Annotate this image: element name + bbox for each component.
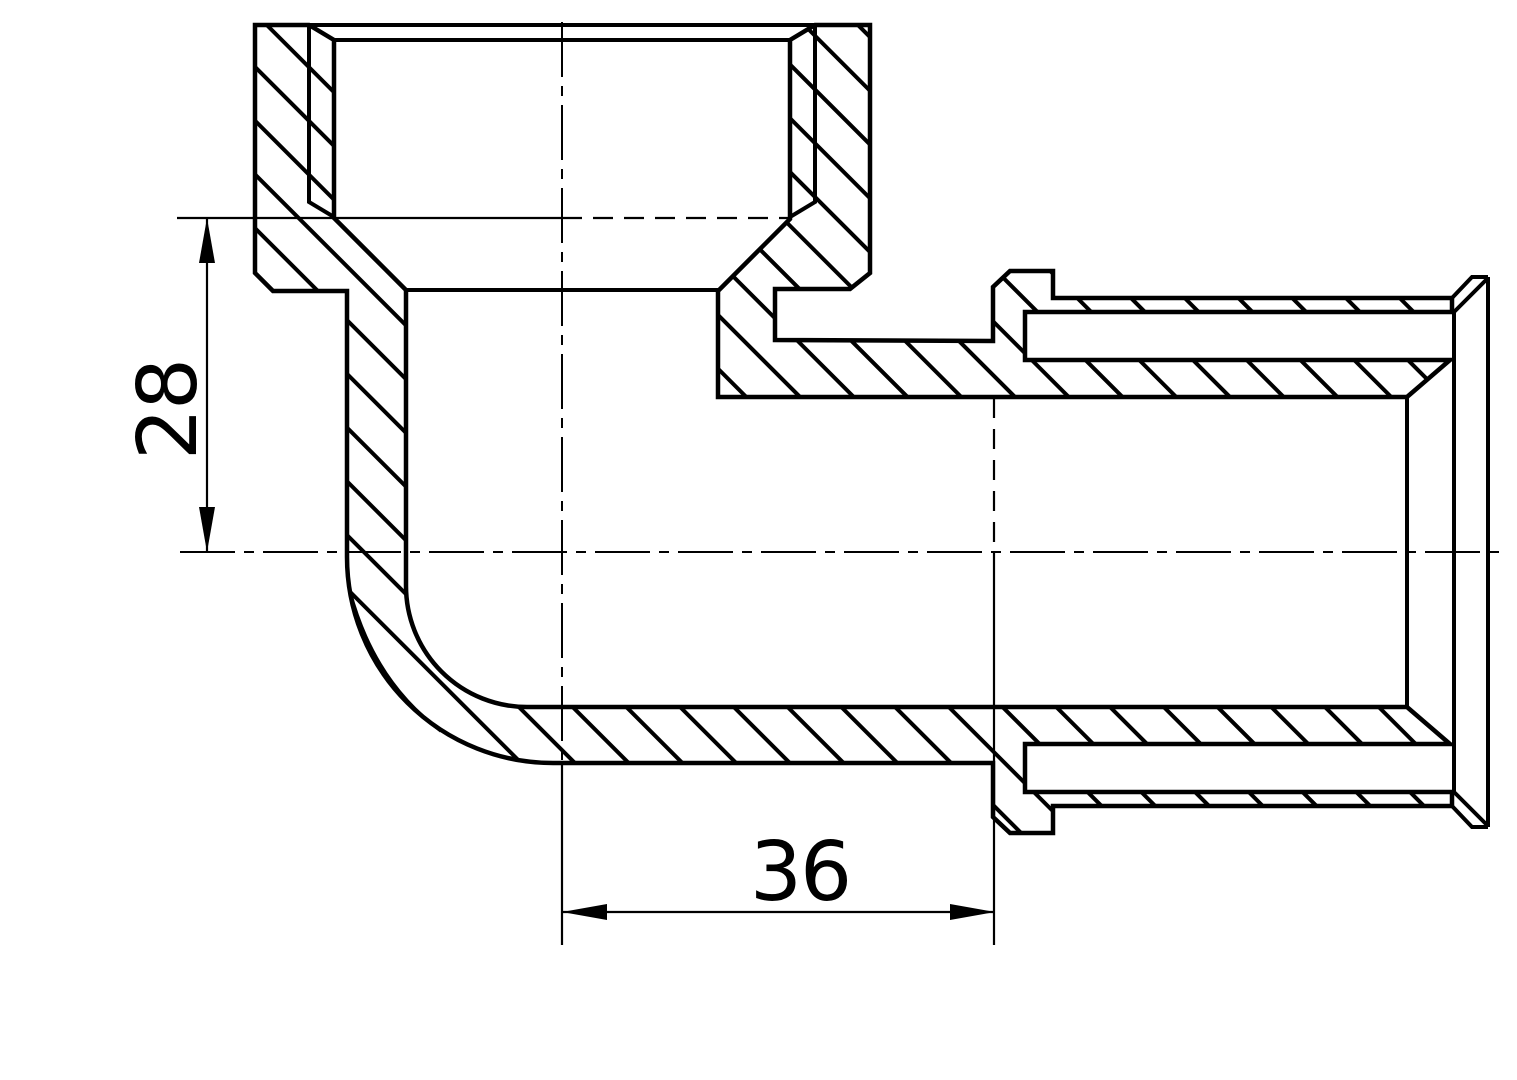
arrowhead-left bbox=[562, 904, 607, 920]
technical-drawing: 28 36 bbox=[0, 0, 1517, 1080]
arrowhead-right bbox=[950, 904, 995, 920]
body-upper-right-section bbox=[718, 25, 1452, 397]
drawing-sheet: 28 36 bbox=[0, 0, 1517, 1080]
sleeve-lip-bottom bbox=[1452, 792, 1488, 827]
fitting-section-body bbox=[255, 25, 1452, 833]
sleeve-lip-top bbox=[1452, 277, 1488, 312]
dimension-28-label: 28 bbox=[121, 360, 216, 460]
arrowhead-down bbox=[199, 507, 215, 552]
arrowhead-up bbox=[199, 218, 215, 263]
dimension-36-label: 36 bbox=[750, 825, 850, 920]
